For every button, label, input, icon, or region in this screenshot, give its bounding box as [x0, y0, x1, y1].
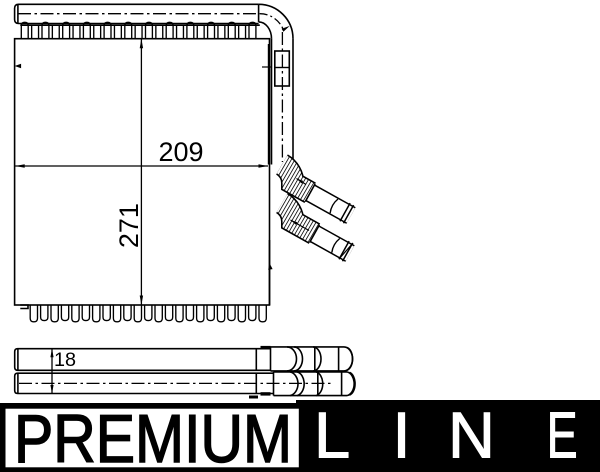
svg-text:PREMIUM: PREMIUM	[14, 402, 292, 472]
svg-text:E: E	[547, 398, 578, 471]
svg-text:I: I	[393, 398, 411, 471]
svg-text:N: N	[448, 398, 495, 471]
svg-text:209: 209	[158, 137, 203, 167]
svg-text:271: 271	[114, 203, 144, 248]
svg-text:18: 18	[54, 349, 76, 371]
svg-text:L: L	[314, 398, 350, 471]
